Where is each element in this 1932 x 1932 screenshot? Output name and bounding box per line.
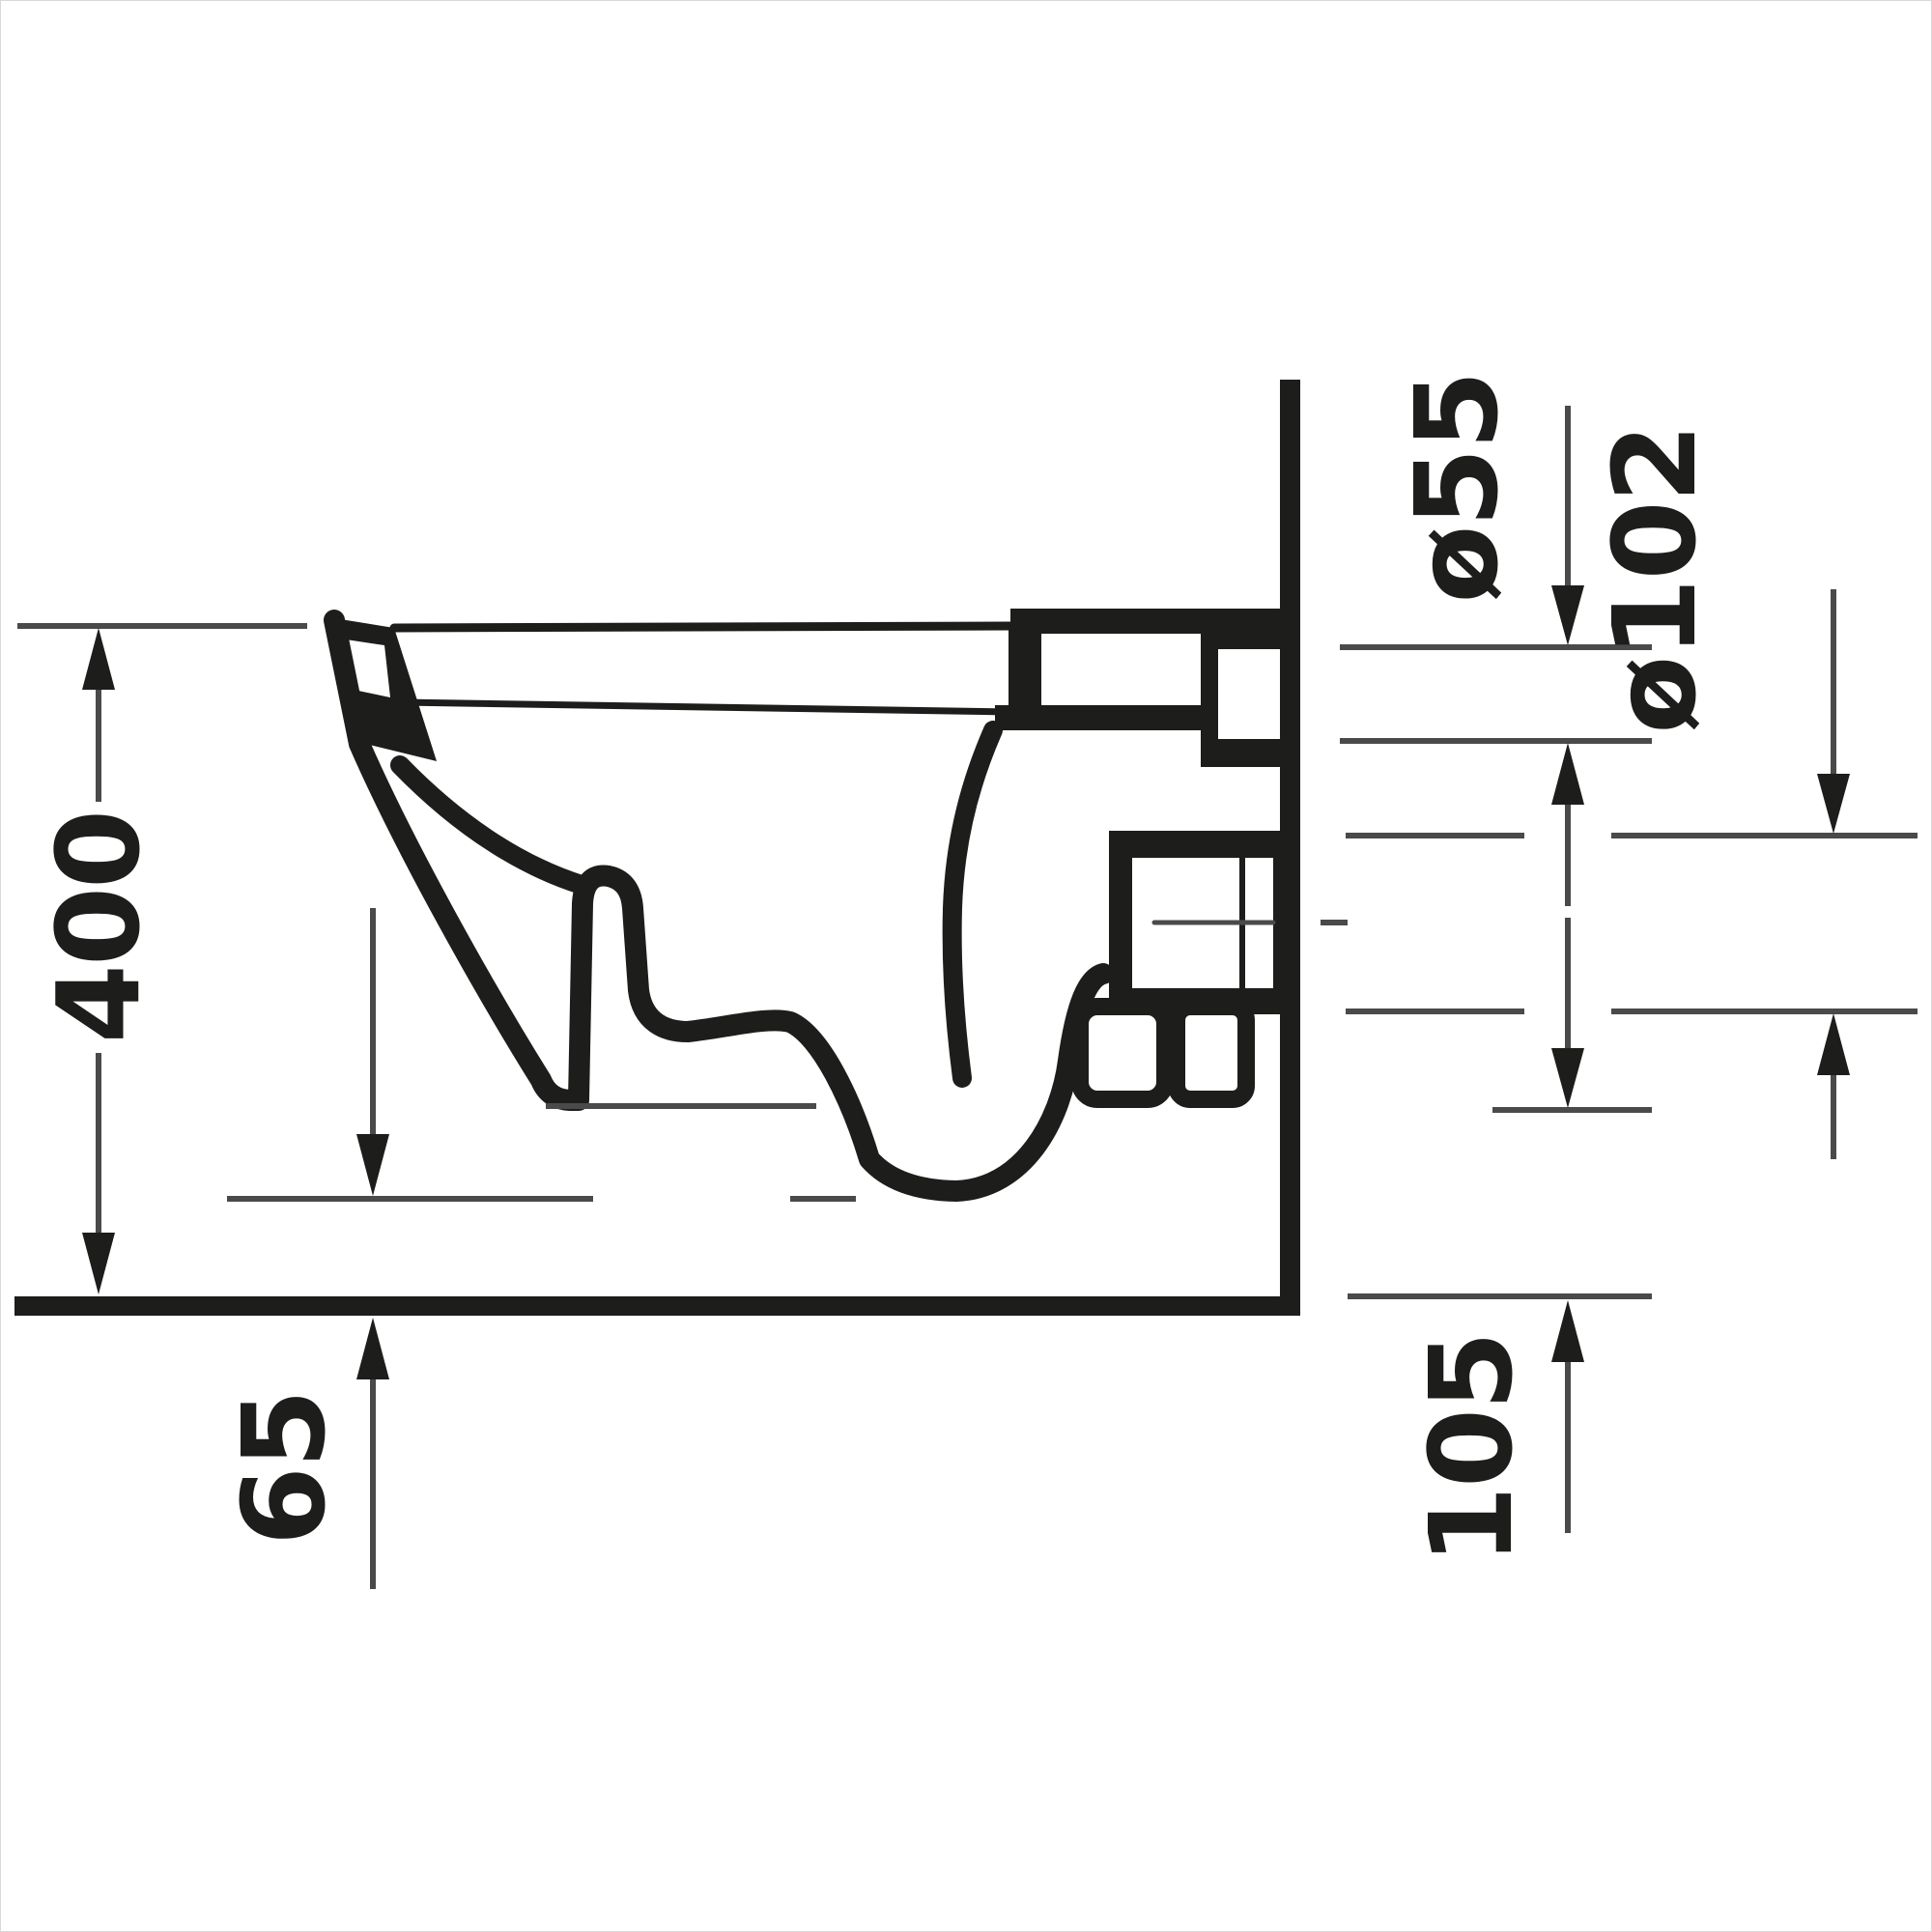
dimension-label-400: 400	[32, 811, 165, 1043]
floor-line	[14, 1296, 1300, 1316]
arrow-down-icon	[1817, 774, 1850, 834]
mounting-brackets	[1080, 1007, 1246, 1099]
seat-inner-line	[401, 702, 1010, 712]
dimension-label-o102: ø102	[1588, 425, 1721, 733]
dimension-o55	[1551, 406, 1584, 1108]
dimension-105	[1551, 1300, 1584, 1533]
dimension-labels: 400 65 ø55 ø102 105	[32, 372, 1721, 1565]
arrow-up-icon	[356, 1318, 389, 1379]
inlet-spud	[1201, 609, 1280, 767]
rim-channel-front-wall	[1009, 626, 1041, 707]
top-surface-line	[394, 626, 1010, 628]
arrow-up-icon	[1551, 1300, 1584, 1362]
outlet-horn	[1109, 831, 1280, 1014]
dimension-label-105: 105	[1405, 1333, 1538, 1565]
inlet-spud-hole	[1218, 649, 1280, 739]
arrow-up-icon	[1817, 1013, 1850, 1075]
right-extension-lines	[1321, 647, 1918, 1296]
rim-channel-bottom	[995, 705, 1232, 730]
dimension-label-65: 65	[217, 1391, 351, 1546]
drawing-canvas: 400 65 ø55 ø102 105	[0, 0, 1932, 1932]
arrow-down-icon	[1551, 585, 1584, 645]
arrow-down-icon	[1551, 1048, 1584, 1108]
technical-drawing: 400 65 ø55 ø102 105	[0, 0, 1932, 1932]
building-section	[14, 380, 1300, 1316]
wall-line	[1280, 380, 1300, 1316]
bowl-inner-rear	[952, 730, 993, 1078]
arrow-up-icon	[1551, 743, 1584, 805]
dimension-o102	[1817, 589, 1850, 1159]
arrow-down-icon	[82, 1233, 115, 1294]
arrow-up-icon	[82, 628, 115, 690]
arrow-down-icon	[356, 1134, 389, 1196]
dimension-label-o55: ø55	[1390, 372, 1523, 603]
